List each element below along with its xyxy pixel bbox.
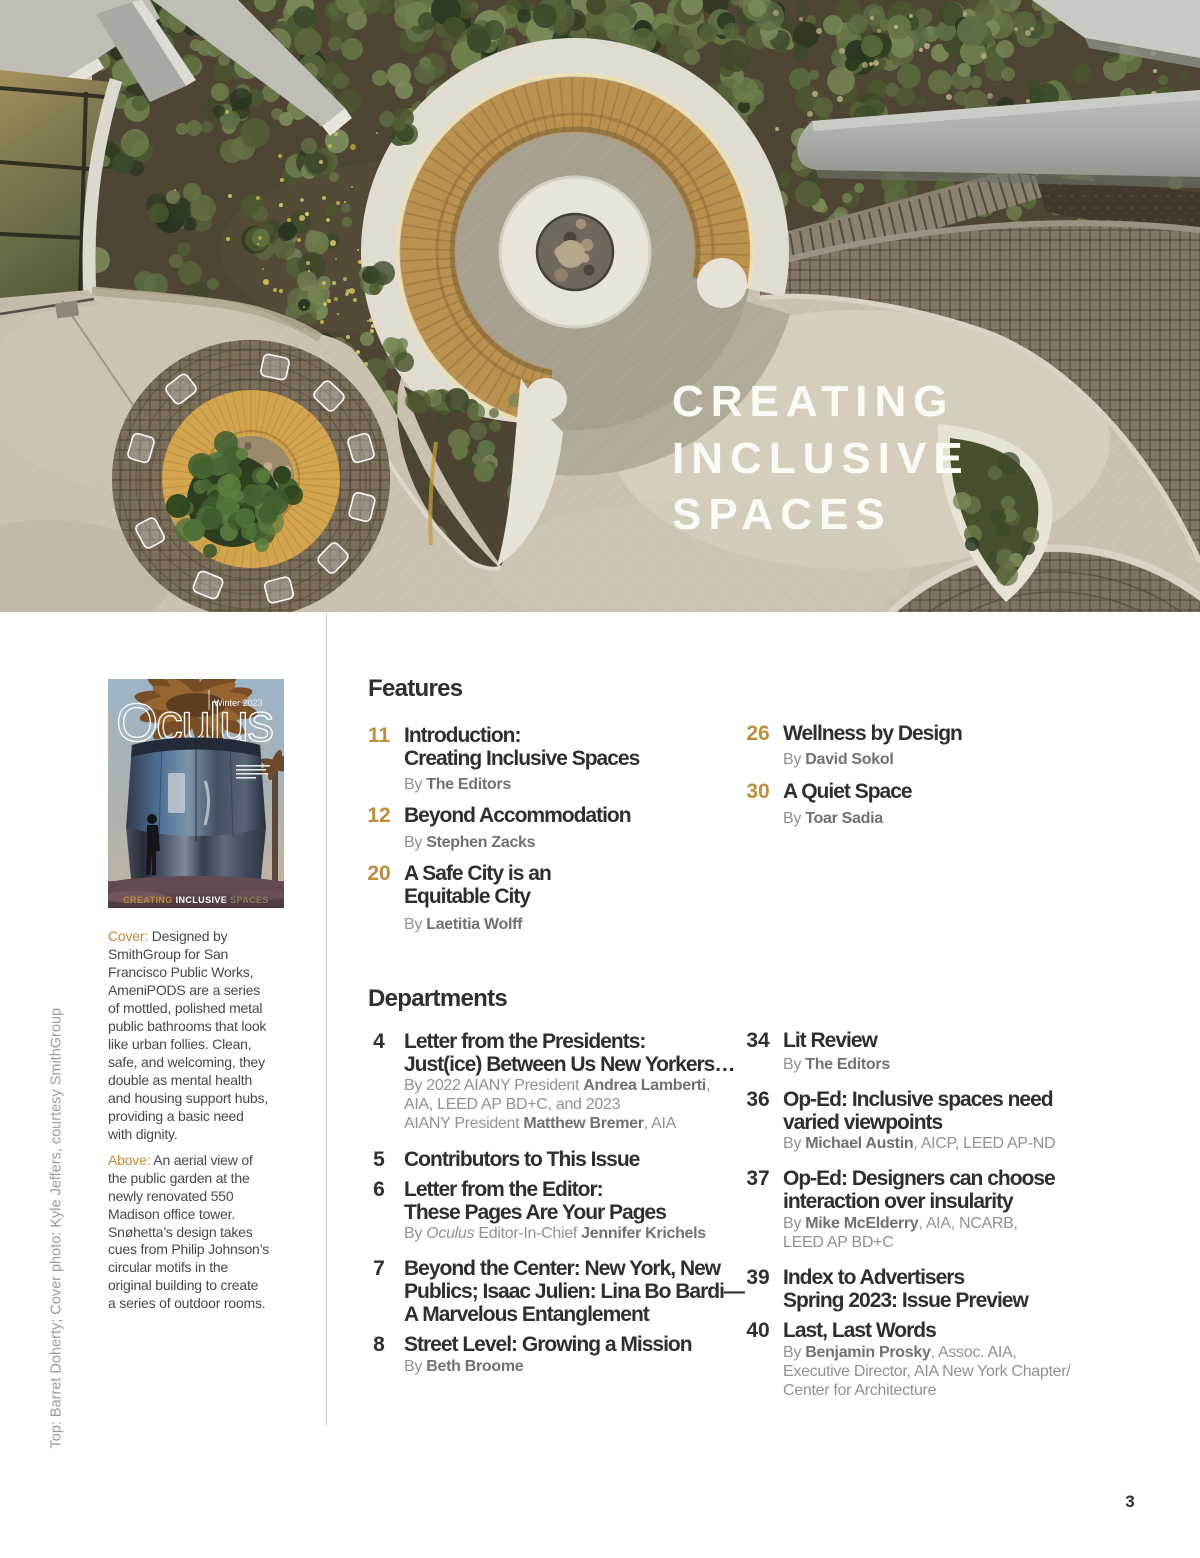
svg-text:CREATING INCLUSIVE SPACES: CREATING INCLUSIVE SPACES xyxy=(123,895,269,905)
svg-text:Winter 2023: Winter 2023 xyxy=(214,698,263,708)
